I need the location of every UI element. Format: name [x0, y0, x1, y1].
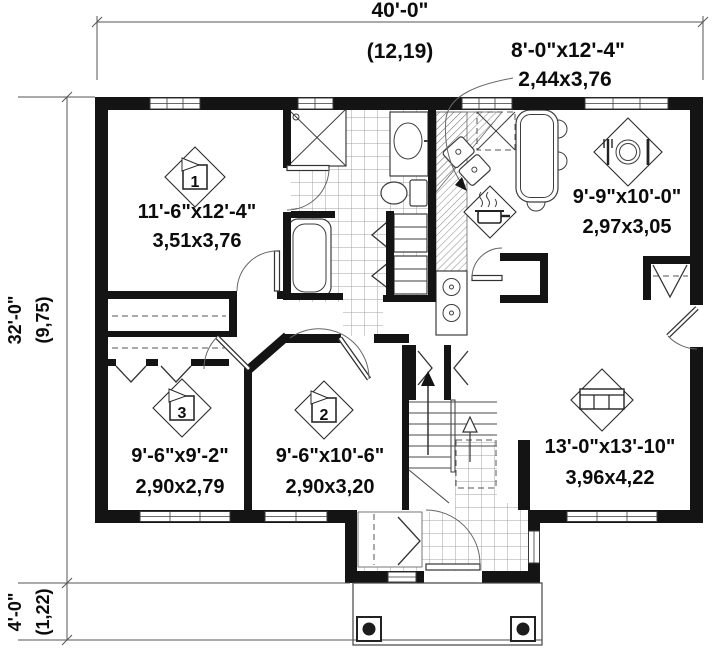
side-entry-door [668, 305, 703, 349]
dining-size-metric: 2,97x3,05 [583, 216, 672, 238]
bedroom2-size-metric: 2,90x3,20 [286, 476, 375, 498]
toilet-icon [381, 182, 407, 204]
window-sidelight [388, 572, 416, 582]
bed3-bed2-wall [244, 366, 252, 510]
kitchen-bath-wall [428, 110, 436, 302]
stair-wall [402, 345, 409, 510]
bifold-door-icon [161, 366, 191, 382]
bedroom3-marker: 3 [153, 379, 211, 437]
stool-icon [558, 152, 567, 170]
living-marker [571, 369, 633, 431]
sofa-icon [580, 389, 624, 409]
linen-shelves-upper [394, 214, 427, 252]
living-foyer-wall [518, 440, 530, 510]
bifold-door-icon [653, 265, 687, 297]
porch [353, 583, 542, 645]
floor-plan-page: 1 3 2 [0, 0, 720, 659]
living-size-imperial: 13'-0"x13'-10" [545, 436, 676, 458]
overall-width-metric: (12,19) [367, 40, 434, 63]
marker-number: 1 [191, 174, 200, 191]
dining-marker [594, 118, 662, 186]
stove [436, 271, 467, 335]
window [150, 98, 200, 109]
marker-number: 3 [178, 405, 187, 422]
stool-icon [558, 120, 567, 138]
linen-shelves-lower [394, 256, 427, 294]
stair-rail [451, 400, 455, 472]
bedroom1-marker: 1 [165, 147, 225, 207]
kitchen-size-metric: 2,44x3,76 [518, 68, 611, 91]
porch-depth-imperial: 4'-0" [5, 593, 25, 632]
bedroom1-size-imperial: 11'-6"x12'-4" [138, 201, 257, 223]
bedroom2-marker: 2 [295, 381, 353, 439]
window-sidelight [529, 531, 540, 563]
pantry-door [472, 248, 502, 281]
porch-depth-metric: (1,22) [33, 588, 53, 635]
hall-tile-strip [343, 300, 383, 336]
kitchen-size-imperial: 8'-0"x12'-4" [511, 39, 625, 62]
foyer-closet [358, 512, 422, 567]
bedroom3-size-metric: 2,90x2,79 [136, 476, 225, 498]
window [585, 98, 668, 109]
bed2-angled-wall [247, 336, 287, 371]
overall-width-imperial: 40'-0" [372, 0, 429, 22]
kitchen-marker [464, 186, 516, 238]
window [298, 98, 333, 109]
exterior-wall-left [95, 97, 108, 523]
bedroom1-door [237, 251, 280, 291]
bedroom2-size-imperial: 9'-6"x10'-6" [276, 445, 385, 467]
porch-column [511, 617, 535, 641]
floor-plan-canvas: 1 3 2 [0, 0, 720, 659]
bedroom3-size-imperial: 9'-6"x9'-2" [131, 445, 228, 467]
dining-size-imperial: 9'-9"x10'-0" [573, 186, 682, 208]
porch-column [357, 617, 381, 641]
overall-height-imperial: 32'-0" [5, 296, 25, 345]
toilet-tank [410, 180, 427, 206]
stool-icon [527, 202, 545, 211]
window [265, 512, 327, 522]
window [462, 98, 512, 109]
window [567, 512, 657, 522]
bedroom1-size-metric: 3,51x3,76 [153, 230, 242, 252]
living-size-metric: 3,96x4,22 [566, 467, 655, 489]
kitchen-island [516, 110, 558, 202]
bifold-door-icon [454, 351, 468, 385]
overall-height-metric: (9,75) [33, 296, 53, 343]
marker-number: 2 [320, 407, 329, 424]
bifold-door-icon [116, 366, 146, 382]
window [140, 512, 230, 522]
